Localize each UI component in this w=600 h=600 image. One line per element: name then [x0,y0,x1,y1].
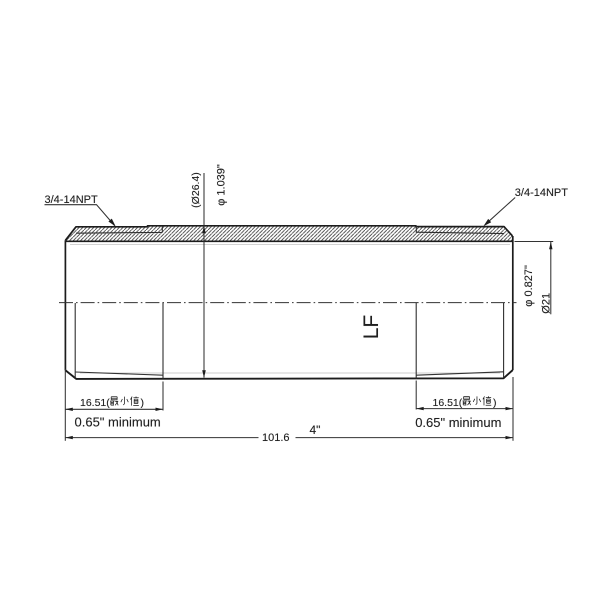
svg-text:): ) [141,397,145,409]
svg-text:Ø21: Ø21 [540,293,552,314]
svg-text:φ 0.827": φ 0.827" [523,265,535,307]
svg-text:0.65" minimum: 0.65" minimum [415,415,501,430]
svg-text:(Ø26.4): (Ø26.4) [190,172,202,208]
svg-text:3/4-14NPT: 3/4-14NPT [515,187,568,199]
svg-text:101.6: 101.6 [262,432,290,444]
svg-text:16.51(: 16.51( [80,397,110,409]
svg-text:4": 4" [310,423,321,437]
svg-text:0.65" minimum: 0.65" minimum [75,414,161,429]
svg-text:16.51(: 16.51( [433,397,463,409]
svg-text:): ) [493,397,497,409]
svg-text:3/4-14NPT: 3/4-14NPT [45,194,98,206]
svg-text:φ 1.039": φ 1.039" [216,164,228,206]
svg-text:LF: LF [360,315,383,340]
